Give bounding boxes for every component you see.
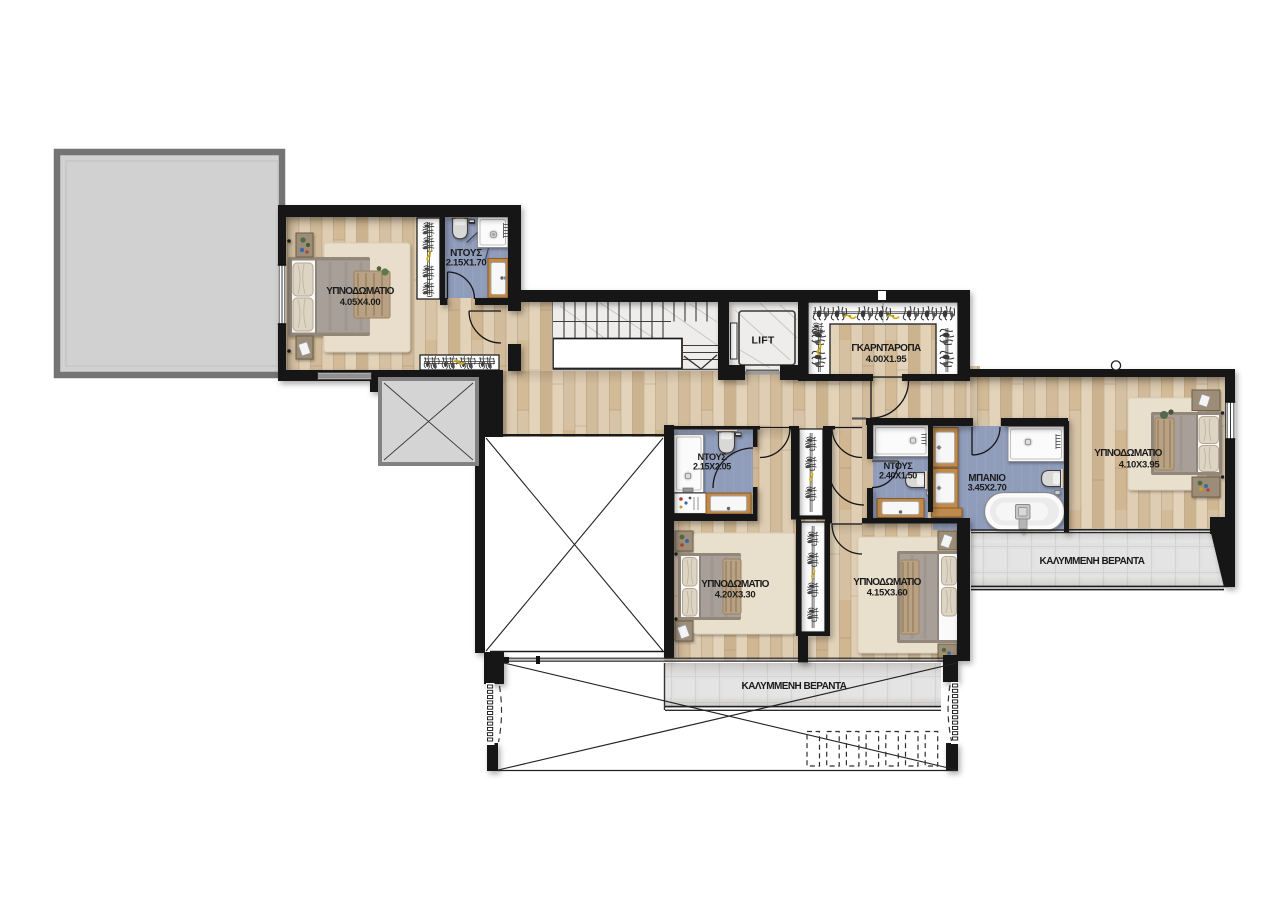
- svg-text:ΚΑΛΥΜΜΕΝΗ ΒΕΡΑΝΤΑ: ΚΑΛΥΜΜΕΝΗ ΒΕΡΑΝΤΑ: [742, 681, 847, 692]
- svg-text:ΝΤΟΥΣ: ΝΤΟΥΣ: [884, 461, 914, 471]
- svg-text:4.10X3.95: 4.10X3.95: [1119, 460, 1161, 471]
- svg-text:ΚΑΛΥΜΜΕΝΗ ΒΕΡΑΝΤΑ: ΚΑΛΥΜΜΕΝΗ ΒΕΡΑΝΤΑ: [1040, 556, 1145, 567]
- svg-text:4.00X1.95: 4.00X1.95: [866, 354, 908, 365]
- svg-text:ΝΤΟΥΣ: ΝΤΟΥΣ: [698, 452, 728, 462]
- svg-text:LIFT: LIFT: [752, 335, 775, 347]
- svg-text:2.40X1.50: 2.40X1.50: [879, 471, 917, 481]
- svg-text:ΥΠΝΟΔΩΜΑΤΙΟ: ΥΠΝΟΔΩΜΑΤΙΟ: [853, 577, 921, 588]
- svg-text:2.15X2.05: 2.15X2.05: [693, 462, 731, 472]
- svg-text:4.15X3.60: 4.15X3.60: [867, 588, 908, 599]
- svg-text:ΓΚΑΡΝΤΑΡΟΠΑ: ΓΚΑΡΝΤΑΡΟΠΑ: [851, 343, 921, 354]
- svg-text:4.20X3.30: 4.20X3.30: [715, 590, 756, 601]
- svg-text:ΥΠΝΟΔΩΜΑΤΙΟ: ΥΠΝΟΔΩΜΑΤΙΟ: [701, 579, 769, 590]
- svg-text:3.45X2.70: 3.45X2.70: [968, 483, 1007, 493]
- svg-text:4.05X4.00: 4.05X4.00: [340, 297, 381, 308]
- svg-text:2.15X1.70: 2.15X1.70: [446, 258, 487, 269]
- svg-text:ΥΠΝΟΔΩΜΑΤΙΟ: ΥΠΝΟΔΩΜΑΤΙΟ: [326, 286, 394, 297]
- svg-text:ΥΠΝΟΔΩΜΑΤΙΟ: ΥΠΝΟΔΩΜΑΤΙΟ: [1094, 448, 1162, 459]
